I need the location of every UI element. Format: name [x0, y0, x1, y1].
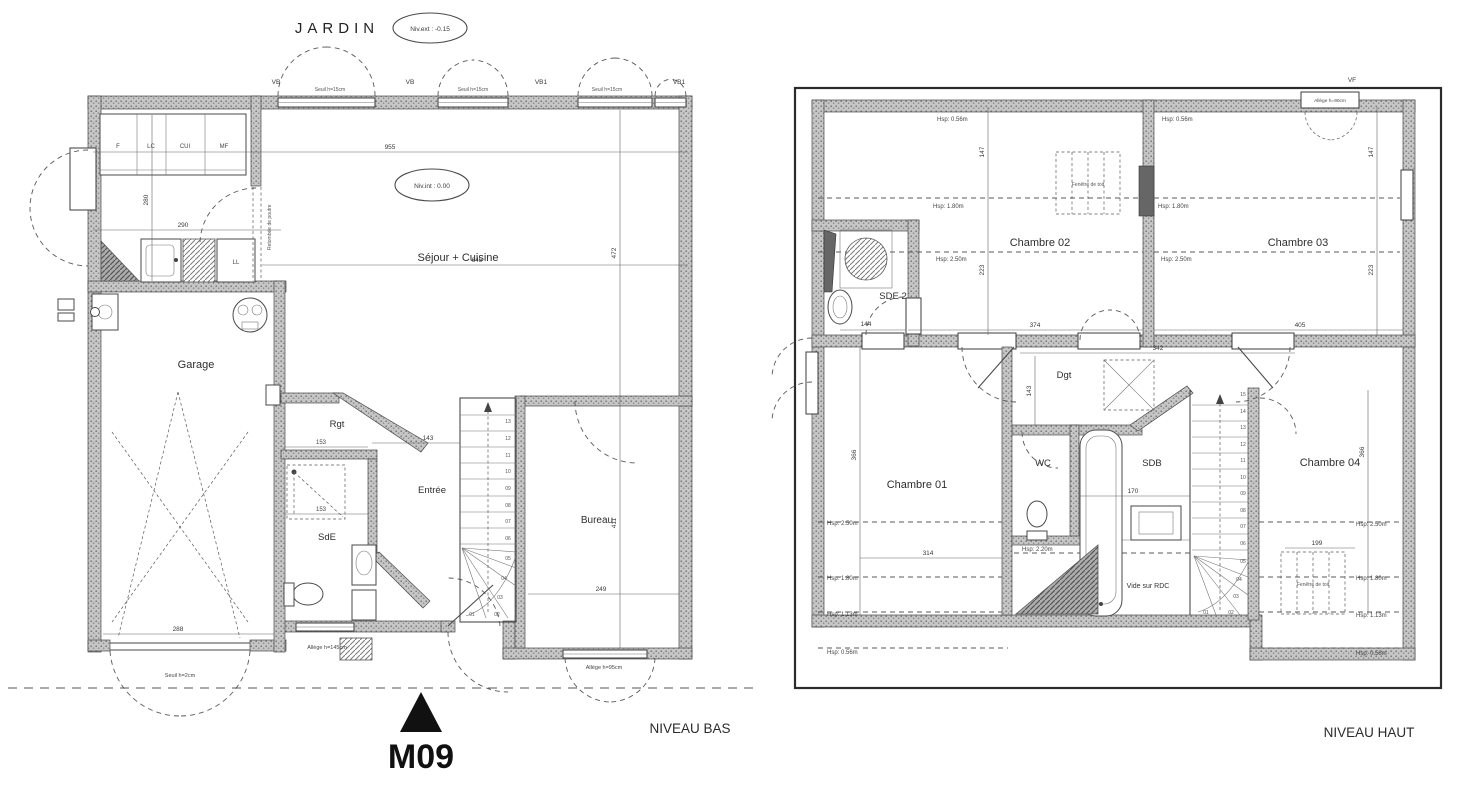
ext-level-badge: Niv.ext : -0.15: [393, 13, 467, 43]
room-label-sdb: SDB: [1142, 458, 1162, 469]
room-label-dgt: Dgt: [1057, 370, 1072, 381]
window-label-vb1a: VB: [272, 79, 281, 86]
shower-icon: [845, 238, 887, 280]
room-label-ch04: Chambre 04: [1300, 457, 1361, 469]
dim-garage-top: 290: [178, 222, 189, 229]
roof-window-icon: Fenêtre de toit: [1056, 152, 1120, 214]
dim: 199: [1312, 540, 1323, 547]
hsp-label: Hsp: 2.20m: [1022, 547, 1053, 553]
stair-num: 01: [469, 612, 475, 618]
toilet-icon: [1027, 501, 1047, 540]
hsp-label: Hsp: 0.56m: [1356, 651, 1387, 657]
dim-bureau-w: 249: [596, 586, 607, 593]
dim: 366: [851, 449, 858, 460]
stair-num: 03: [497, 595, 503, 601]
sill-label-3: Seuil h=15cm: [592, 87, 622, 93]
ground-floor-plan: JARDIN Niv.ext : -0.15: [8, 13, 757, 716]
beam-note: Retombée de poutre: [267, 204, 273, 250]
bureau-door-arc: [575, 401, 637, 463]
meter-box-icon: [266, 385, 280, 405]
dim: 405: [1295, 322, 1306, 329]
stair-num: 06: [505, 536, 511, 542]
hsp-label: Hsp: 2.50m: [936, 257, 967, 263]
ext-level-text: Niv.ext : -0.15: [410, 26, 450, 33]
hsp-label: Hsp: 1.80m: [1158, 204, 1189, 210]
level-low-label: NIVEAU BAS: [649, 721, 730, 736]
window-label-vf: VF: [1348, 77, 1356, 84]
note-seuil-garage: Seuil h=2cm: [165, 673, 196, 679]
window-label-vb1c: VB1: [535, 79, 548, 86]
note-allege-bureau: Allège h=95cm: [586, 665, 623, 671]
window-label-vb1d: VB1: [673, 79, 686, 86]
toilet-icon: [284, 583, 323, 606]
hsp-label: Hsp: 1.80m: [933, 204, 964, 210]
hsp-label: Hsp: 0.56m: [827, 650, 858, 656]
washbasin-icon: [352, 545, 376, 585]
dim: 366: [1359, 446, 1366, 457]
kitchen-units: F LC CUI MF: [100, 114, 246, 175]
floor-plan-sheet: JARDIN Niv.ext : -0.15: [0, 0, 1482, 800]
dim-sejour: 645: [472, 257, 483, 264]
stair-num: 04: [501, 576, 507, 582]
boiler-icon: [233, 298, 267, 332]
roof-window-icon: Fenêtre de toit: [1281, 552, 1345, 614]
sill-label-2: Seuil h=15cm: [458, 87, 488, 93]
stair-num: 09: [505, 486, 511, 492]
window-label-vb1b: VB: [406, 79, 415, 86]
dim-rgt-a: 153: [316, 440, 327, 446]
stairs-ground: 01 02 03 04 05 06 07 08 09 10 11 12 13: [460, 398, 516, 622]
unit-mf-label: MF: [220, 144, 229, 150]
kitchen-counter: LL: [101, 239, 255, 282]
stair-num: 08: [1240, 508, 1246, 514]
stair-num: 05: [1240, 559, 1246, 565]
stair-num: 03: [1233, 594, 1239, 600]
stair-num: 14: [1240, 409, 1246, 415]
plan-canvas: JARDIN Niv.ext : -0.15: [0, 0, 1482, 800]
stair-num: 01: [1203, 610, 1209, 616]
dim-kitchen-depth: 280: [143, 194, 150, 205]
dim: 170: [1128, 488, 1139, 495]
dim-sejour-h: 472: [611, 247, 618, 258]
stair-num: 07: [1240, 524, 1246, 530]
stair-num: 04: [1236, 577, 1242, 583]
sde2-fixtures: [824, 230, 892, 324]
beam-line: Retombée de poutre: [253, 187, 273, 281]
dim-total: 955: [385, 144, 396, 151]
skylight-icon: [1104, 360, 1154, 410]
room-label-sde: SdE: [318, 532, 336, 543]
sdb-sink-icon: [1131, 506, 1181, 540]
stair-num: 13: [1240, 425, 1246, 431]
room-label-ch02: Chambre 02: [1010, 237, 1071, 249]
ground-windows: [70, 98, 686, 658]
room-label-sejour: Séjour + Cuisine: [417, 252, 498, 264]
hsp-label: Hsp: 0.56m: [937, 117, 968, 123]
room-label-bureau: Bureau: [581, 515, 613, 526]
dim: 314: [923, 550, 934, 557]
kitchen-door-arc: [200, 188, 256, 244]
stair-num: 12: [1240, 442, 1246, 448]
unit-cui-label: CUI: [180, 144, 191, 150]
model-label: M09: [388, 738, 454, 776]
level-high-label: NIVEAU HAUT: [1324, 725, 1415, 740]
stair-num: 13: [505, 419, 511, 425]
note-allege-entry: Allège h=145cm: [307, 645, 347, 651]
garage-door: [110, 643, 250, 716]
north-arrow: [400, 692, 442, 732]
garden-label: JARDIN: [295, 20, 379, 37]
drainer-icon: [183, 239, 215, 282]
int-level-badge: Niv.int : 0.00: [395, 169, 469, 201]
dim: 342: [1153, 345, 1164, 352]
stairs-upper: 01 02 03 04 05 06 07 08 09 10 11 12 13 1…: [1192, 392, 1248, 616]
stair-num: 02: [1228, 610, 1234, 616]
dim: 223: [1368, 264, 1375, 275]
room-label-rgt: Rgt: [330, 419, 345, 430]
washbasin-icon: [828, 290, 852, 324]
room-label-garage: Garage: [178, 359, 215, 371]
stair-num: 10: [505, 469, 511, 475]
int-level-text: Niv.int : 0.00: [414, 183, 450, 190]
dim: 143: [1026, 385, 1033, 396]
dim: 223: [979, 264, 986, 275]
dim: 147: [1368, 146, 1375, 157]
note-allege-vf: Allège h=90cm: [1314, 98, 1346, 104]
roof-window-label: Fenêtre de toit: [1072, 182, 1105, 188]
stair-num: 11: [505, 453, 510, 459]
stair-num: 10: [1240, 475, 1246, 481]
stair-num: 15: [1240, 392, 1246, 398]
hsp-label: Hsp: 1.13m: [1356, 613, 1387, 619]
hsp-label: Hsp: 2.50m: [1356, 522, 1387, 528]
washer-icon: [352, 590, 376, 620]
appliance-ll-label: LL: [233, 260, 240, 266]
stair-num: 11: [1240, 458, 1245, 464]
corner-unit-icon: [101, 241, 139, 281]
hsp-label: Hsp: 0.56m: [1162, 117, 1193, 123]
unit-lc-label: LC: [147, 144, 155, 150]
hsp-label: Hsp: 1.80m: [827, 576, 858, 582]
upper-floor-plan: Allège h=90cm VF Chambre 02 Chambre 03 C…: [772, 77, 1441, 688]
stair-num: 09: [1240, 491, 1246, 497]
dim: 147: [979, 146, 986, 157]
hsp-label: Hsp: 1.80m: [1356, 576, 1387, 582]
hsp-label: Hsp: 2.50m: [827, 521, 858, 527]
room-label-entree: Entrée: [418, 485, 446, 496]
dim-entree: 143: [423, 435, 434, 442]
stair-num: 06: [1240, 541, 1246, 547]
dim-garage-w: 288: [173, 626, 184, 633]
room-label-ch01: Chambre 01: [887, 479, 948, 491]
car-template: [112, 392, 248, 638]
stair-num: 02: [494, 612, 500, 618]
room-label-vide: Vide sur RDC: [1127, 583, 1170, 590]
hsp-label: Hsp: 1.13m: [827, 612, 858, 618]
room-label-wc: WC: [1035, 458, 1051, 469]
dim-rgt-b: 153: [316, 507, 327, 513]
hsp-label: Hsp: 2.50m: [1161, 257, 1192, 263]
room-label-sde2: SDE 2: [879, 291, 906, 302]
dim: 144: [861, 321, 872, 328]
stair-num: 08: [505, 503, 511, 509]
stair-num: 05: [505, 556, 511, 562]
sloped-zone-hatch: [1016, 545, 1098, 614]
dim: 374: [1030, 322, 1041, 329]
ground-interior-walls: [88, 96, 692, 652]
stair-arrow-icon: [1216, 394, 1224, 404]
sill-label-1: Seuil h=15cm: [315, 87, 345, 93]
unit-f-label: F: [116, 144, 120, 150]
room-label-ch03: Chambre 03: [1268, 237, 1329, 249]
stair-num: 12: [505, 436, 511, 442]
stair-num: 07: [505, 519, 511, 525]
dim-bureau-h: 411: [611, 517, 618, 528]
side-door: [70, 148, 96, 210]
roof-window-label: Fenêtre de toit: [1297, 582, 1330, 588]
duct-icon: [1139, 166, 1154, 216]
stair-arrow-icon: [484, 402, 492, 412]
